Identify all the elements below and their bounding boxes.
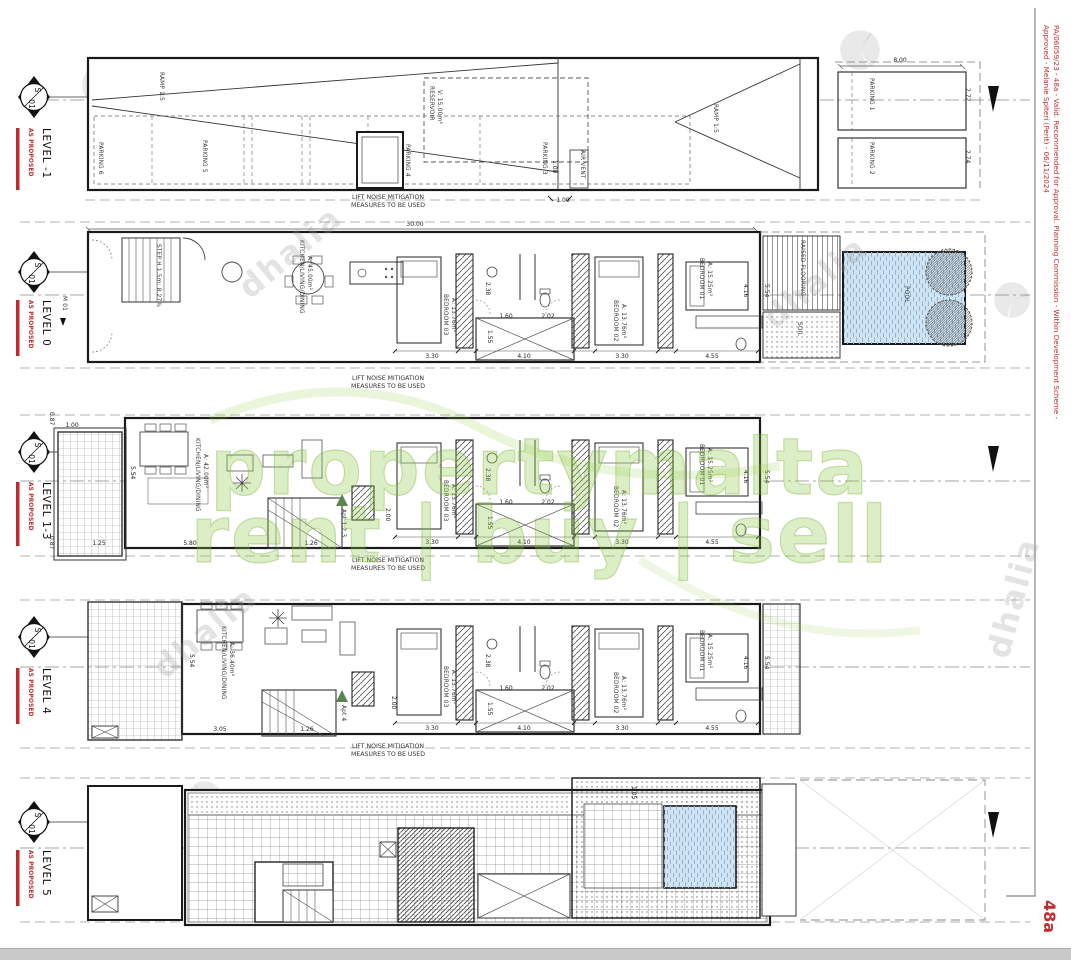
reservoir-volume: V: 15.00m³ (436, 90, 443, 124)
north-arrow (988, 86, 999, 112)
tree (926, 300, 972, 346)
level-minus1: AS PROPOSED LEVEL -1 RAMP 1:5 PARKING 6 … (16, 57, 1030, 209)
tree (926, 249, 972, 295)
ramp-right-label: RAMP 1:5 (712, 104, 718, 133)
level-0: AS PROPOSED LEVEL 0 M 01 30.00 STEP H 1.… (16, 221, 1030, 390)
dim-30-00: 30.00 (406, 221, 423, 228)
floorplan-drawing: S 01 LIFT NOISE MITIGATION MEASURES TO B… (0, 0, 1071, 960)
status-as-proposed: AS PROPOSED (27, 482, 33, 531)
dim-5-54-left: 5.54 (129, 466, 136, 480)
level-1-3-tag: AS PROPOSED LEVEL 1-3 (16, 482, 52, 546)
sheet-frame (1006, 8, 1035, 896)
status-as-proposed: AS PROPOSED (27, 300, 33, 349)
apt-label: Apt 4 (340, 705, 346, 722)
reservoir-label: RESERVOIR (428, 86, 434, 121)
roof-pool (664, 806, 736, 888)
watermark-brand-line2: rent | buy | sell (191, 491, 890, 581)
approval-note-line1: PA/06059/23 - 48a - Valid. Recommended f… (1052, 25, 1061, 420)
parking4-label: PARKING 4 (404, 144, 410, 177)
balcony (58, 432, 122, 556)
dim-2-74: 2.74 (964, 150, 971, 164)
m01-marker: M 01 (61, 296, 67, 311)
dim-1-26: 1.26 (300, 726, 314, 733)
level-4-tag: AS PROPOSED LEVEL 4 (16, 668, 52, 724)
dim-2-72: 2.72 (964, 88, 971, 102)
level-0-title: LEVEL 0 (40, 300, 52, 346)
level-4-title: LEVEL 4 (40, 668, 52, 714)
step-label: STEP H 1.5m: 8.27% (155, 244, 161, 307)
dim-0-87-b: 0.87 (48, 536, 55, 550)
parking2-label: PARKING 2 (868, 142, 874, 175)
north-arrow (988, 446, 999, 472)
dim-0-87-a: 0.87 (48, 412, 55, 426)
level-minus1-tag: AS PROPOSED LEVEL -1 (16, 128, 52, 190)
status-as-proposed: AS PROPOSED (27, 128, 33, 177)
level-minus1-title: LEVEL -1 (40, 128, 52, 179)
watermark-dhalia: dhalia (979, 534, 1047, 662)
level-5: AS PROPOSED LEVEL 5 1.05 (16, 778, 1030, 925)
parking6-label: PARKING 6 (97, 142, 103, 175)
dim-1-00-a: 1.00 (551, 160, 558, 174)
roof-stair-enclosure (398, 828, 474, 922)
level-5-tag: AS PROPOSED LEVEL 5 (16, 850, 52, 906)
parking3-label: PARKING 3 (541, 142, 547, 175)
pool-label: POOL (903, 286, 909, 303)
level-0-tag: AS PROPOSED LEVEL 0 (16, 300, 52, 356)
floorplan-sheet: S 01 LIFT NOISE MITIGATION MEASURES TO B… (0, 0, 1071, 960)
parking5-label: PARKING 5 (201, 140, 207, 173)
approval-stamp: PA/06059/23 - 48a - Valid. Recommended f… (1040, 25, 1061, 933)
ramp-left-label: RAMP 1:5 (158, 72, 164, 101)
sheet-number: 48a (1040, 900, 1059, 933)
dim-8-00: 8.00 (893, 57, 907, 64)
north-arrow (988, 812, 999, 838)
page-bottom-edge (0, 948, 1071, 960)
status-as-proposed: AS PROPOSED (27, 668, 33, 717)
dim-2-00: 2.00 (390, 696, 397, 710)
dim-1-05: 1.05 (630, 786, 637, 800)
dim-1-00: 1.00 (65, 422, 79, 429)
dim-1-25: 1.25 (92, 540, 106, 547)
soil-label: SOIL (796, 322, 802, 337)
status-as-proposed: AS PROPOSED (27, 850, 33, 899)
level-1-3-title: LEVEL 1-3 (40, 482, 52, 540)
level-5-title: LEVEL 5 (40, 850, 52, 896)
dim-3-05: 3.05 (213, 726, 227, 733)
parking1-label: PARKING 1 (868, 78, 874, 111)
approval-note-line2: Approved - Melanie Spiteri (Perit) - 06/… (1042, 25, 1051, 193)
kld-area: A: 36.40m² (228, 642, 235, 676)
air-vent-label: AIR VENT (579, 150, 585, 179)
